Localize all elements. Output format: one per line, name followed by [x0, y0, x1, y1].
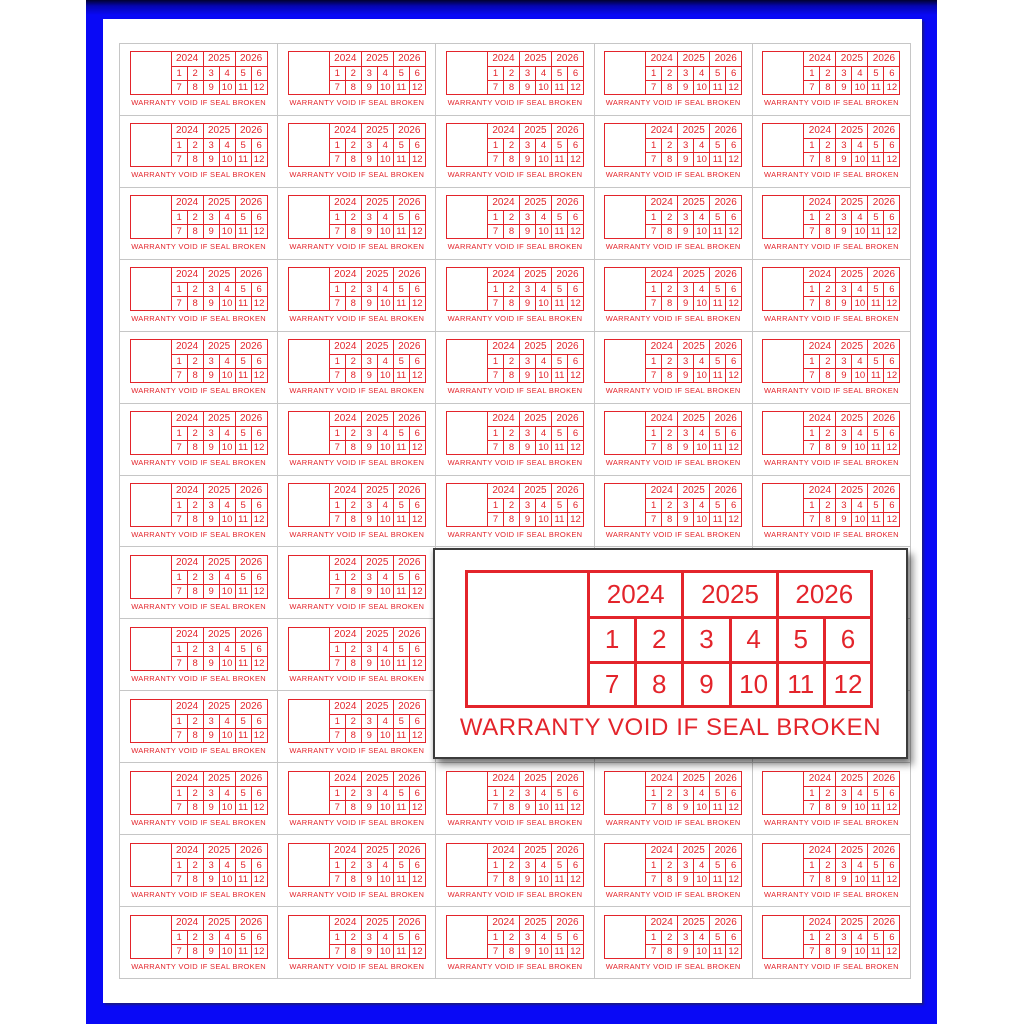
month-cell: 11 [868, 873, 884, 886]
month-cell: 6 [252, 715, 267, 728]
month-cell: 5 [868, 499, 884, 512]
month-row: 123456 [330, 211, 425, 225]
month-cell: 9 [836, 369, 852, 382]
month-cell: 4 [694, 859, 710, 872]
month-cell: 3 [836, 283, 852, 296]
month-cell: 9 [520, 369, 536, 382]
month-cell: 9 [836, 513, 852, 526]
year-row: 202420252026 [646, 484, 741, 499]
month-cell: 8 [346, 873, 362, 886]
month-cell: 3 [204, 283, 220, 296]
month-cell: 6 [884, 427, 899, 440]
year-row: 202420252026 [330, 628, 425, 643]
sheet-cell: 202420252026123456789101112WARRANTY VOID… [120, 907, 278, 979]
year-cell: 2024 [804, 484, 836, 498]
month-cell: 7 [646, 513, 662, 526]
date-table: 202420252026123456789101112 [646, 124, 741, 166]
month-cell: 7 [488, 369, 504, 382]
month-cell: 1 [488, 859, 504, 872]
month-cell: 7 [646, 441, 662, 454]
date-table: 202420252026123456789101112 [804, 196, 899, 238]
month-cell: 5 [394, 787, 410, 800]
year-cell: 2024 [804, 52, 836, 66]
month-row: 123456 [488, 211, 583, 225]
warranty-sticker: 202420252026123456789101112WARRANTY VOID… [288, 699, 426, 755]
month-cell: 3 [678, 211, 694, 224]
month-cell: 3 [678, 67, 694, 80]
month-cell: 2 [662, 211, 678, 224]
month-cell: 11 [710, 297, 726, 310]
serial-write-box [131, 484, 172, 526]
warranty-text: WARRANTY VOID IF SEAL BROKEN [448, 890, 583, 899]
month-cell: 12 [410, 657, 425, 670]
month-cell: 8 [504, 441, 520, 454]
month-cell: 7 [646, 801, 662, 814]
month-cell: 8 [188, 945, 204, 958]
month-row: 789101112 [330, 297, 425, 310]
warranty-text: WARRANTY VOID IF SEAL BROKEN [606, 170, 741, 179]
date-table: 202420252026123456789101112 [330, 916, 425, 958]
month-cell: 4 [852, 283, 868, 296]
warranty-text: WARRANTY VOID IF SEAL BROKEN [289, 890, 424, 899]
month-cell: 11 [710, 873, 726, 886]
month-cell: 4 [378, 499, 394, 512]
month-cell: 3 [520, 787, 536, 800]
sticker-frame: 202420252026123456789101112 [446, 267, 584, 311]
year-row: 202420252026 [804, 196, 899, 211]
month-cell: 4 [852, 211, 868, 224]
month-cell: 12 [410, 873, 425, 886]
month-cell: 8 [504, 81, 520, 94]
sticker-frame: 202420252026123456789101112 [604, 339, 742, 383]
sheet-cell: 202420252026123456789101112WARRANTY VOID… [120, 332, 278, 404]
year-cell: 2024 [646, 772, 678, 786]
month-cell: 11 [236, 729, 252, 742]
year-cell: 2026 [394, 52, 425, 66]
month-cell: 1 [330, 571, 346, 584]
month-row: 123456 [488, 139, 583, 153]
month-cell: 10 [378, 801, 394, 814]
month-cell: 3 [678, 787, 694, 800]
serial-write-box [605, 340, 646, 382]
warranty-text: WARRANTY VOID IF SEAL BROKEN [131, 98, 266, 107]
month-cell: 12 [826, 664, 870, 706]
month-cell: 11 [394, 585, 410, 598]
serial-write-box [131, 556, 172, 598]
year-cell: 2024 [330, 772, 362, 786]
serial-write-box [447, 772, 488, 814]
sticker-frame: 202420252026123456789101112 [762, 915, 900, 959]
year-cell: 2025 [362, 340, 394, 354]
year-row: 202420252026 [488, 844, 583, 859]
warranty-text: WARRANTY VOID IF SEAL BROKEN [131, 314, 266, 323]
year-cell: 2026 [710, 340, 741, 354]
date-table: 202420252026123456789101112 [172, 556, 267, 598]
month-cell: 8 [820, 153, 836, 166]
year-cell: 2026 [710, 844, 741, 858]
month-cell: 7 [488, 801, 504, 814]
sheet-cell: 202420252026123456789101112WARRANTY VOID… [278, 116, 436, 188]
month-cell: 6 [568, 787, 583, 800]
month-row: 123456 [172, 787, 267, 801]
year-row: 202420252026 [330, 52, 425, 67]
month-cell: 4 [220, 859, 236, 872]
sticker-frame: 202420252026123456789101112 [604, 843, 742, 887]
month-cell: 5 [394, 715, 410, 728]
serial-write-box [131, 196, 172, 238]
year-cell: 2025 [204, 340, 236, 354]
month-cell: 11 [552, 225, 568, 238]
year-cell: 2024 [804, 412, 836, 426]
month-cell: 4 [536, 67, 552, 80]
month-cell: 8 [188, 297, 204, 310]
date-table: 202420252026123456789101112 [330, 556, 425, 598]
sheet-cell: 202420252026123456789101112WARRANTY VOID… [278, 260, 436, 332]
month-cell: 7 [646, 81, 662, 94]
month-cell: 4 [220, 67, 236, 80]
year-cell: 2025 [678, 772, 710, 786]
month-row: 123456 [172, 67, 267, 81]
warranty-text: WARRANTY VOID IF SEAL BROKEN [131, 602, 266, 611]
month-cell: 7 [488, 153, 504, 166]
month-row: 789101112 [488, 225, 583, 238]
warranty-sticker: 202420252026123456789101112WARRANTY VOID… [130, 555, 268, 611]
month-row: 789101112 [330, 153, 425, 166]
year-cell: 2024 [330, 700, 362, 714]
month-cell: 10 [852, 441, 868, 454]
month-cell: 1 [646, 499, 662, 512]
month-cell: 4 [694, 787, 710, 800]
month-cell: 8 [346, 657, 362, 670]
month-cell: 5 [394, 643, 410, 656]
month-row: 789101112 [330, 945, 425, 958]
month-cell: 4 [220, 571, 236, 584]
year-cell: 2024 [172, 556, 204, 570]
month-cell: 7 [172, 297, 188, 310]
month-cell: 9 [362, 369, 378, 382]
month-cell: 3 [362, 715, 378, 728]
warranty-sticker: 202420252026123456789101112WARRANTY VOID… [130, 339, 268, 395]
month-cell: 5 [552, 859, 568, 872]
year-row: 202420252026 [172, 124, 267, 139]
month-cell: 4 [536, 931, 552, 944]
month-cell: 8 [662, 801, 678, 814]
year-row: 202420252026 [646, 196, 741, 211]
warranty-text: WARRANTY VOID IF SEAL BROKEN [289, 530, 424, 539]
month-cell: 3 [362, 931, 378, 944]
month-row: 789101112 [172, 369, 267, 382]
warranty-text: WARRANTY VOID IF SEAL BROKEN [606, 962, 741, 971]
year-cell: 2024 [172, 700, 204, 714]
month-cell: 11 [868, 225, 884, 238]
warranty-text: WARRANTY VOID IF SEAL BROKEN [606, 314, 741, 323]
month-cell: 7 [330, 369, 346, 382]
month-row: 123456 [804, 859, 899, 873]
month-cell: 11 [868, 153, 884, 166]
month-cell: 12 [726, 801, 741, 814]
date-table: 202420252026123456789101112 [330, 124, 425, 166]
month-cell: 1 [330, 139, 346, 152]
month-cell: 4 [694, 931, 710, 944]
year-cell: 2026 [710, 412, 741, 426]
warranty-sticker: 202420252026123456789101112WARRANTY VOID… [446, 339, 584, 395]
month-cell: 10 [694, 153, 710, 166]
year-cell: 2025 [204, 412, 236, 426]
month-cell: 11 [710, 801, 726, 814]
year-cell: 2026 [236, 268, 267, 282]
sticker-frame: 202420252026123456789101112 [604, 483, 742, 527]
year-cell: 2025 [362, 196, 394, 210]
sheet-cell: 202420252026123456789101112WARRANTY VOID… [120, 691, 278, 763]
month-cell: 8 [346, 369, 362, 382]
year-cell: 2024 [646, 916, 678, 930]
month-cell: 10 [536, 153, 552, 166]
month-cell: 4 [378, 139, 394, 152]
month-cell: 6 [252, 787, 267, 800]
month-cell: 9 [678, 369, 694, 382]
month-cell: 11 [779, 664, 826, 706]
serial-write-box [289, 556, 330, 598]
year-cell: 2026 [394, 484, 425, 498]
month-cell: 4 [220, 499, 236, 512]
serial-write-box [289, 268, 330, 310]
year-cell: 2024 [804, 196, 836, 210]
month-cell: 7 [330, 297, 346, 310]
month-cell: 4 [220, 931, 236, 944]
month-row: 789101112 [804, 441, 899, 454]
month-cell: 11 [710, 513, 726, 526]
month-cell: 6 [726, 283, 741, 296]
warranty-sticker: 202420252026123456789101112WARRANTY VOID… [130, 483, 268, 539]
month-row: 789101112 [804, 945, 899, 958]
month-row: 123456 [172, 931, 267, 945]
year-cell: 2025 [520, 916, 552, 930]
month-cell: 3 [362, 787, 378, 800]
month-cell: 10 [378, 729, 394, 742]
month-cell: 11 [552, 801, 568, 814]
year-cell: 2026 [552, 916, 583, 930]
month-cell: 4 [378, 643, 394, 656]
month-cell: 2 [188, 787, 204, 800]
sticker-frame: 202420252026123456789101112 [288, 555, 426, 599]
month-cell: 8 [820, 81, 836, 94]
month-cell: 4 [220, 139, 236, 152]
month-cell: 12 [410, 513, 425, 526]
month-row: 123456 [330, 283, 425, 297]
year-row: 202420252026 [330, 700, 425, 715]
month-cell: 6 [884, 139, 899, 152]
month-cell: 9 [204, 81, 220, 94]
month-cell: 12 [410, 297, 425, 310]
date-table: 202420252026123456789101112 [646, 268, 741, 310]
year-cell: 2025 [362, 124, 394, 138]
sheet-cell: 202420252026123456789101112WARRANTY VOID… [753, 332, 911, 404]
serial-write-box [289, 484, 330, 526]
year-cell: 2024 [330, 340, 362, 354]
year-cell: 2026 [236, 628, 267, 642]
year-cell: 2026 [394, 340, 425, 354]
month-cell: 5 [236, 931, 252, 944]
month-cell: 9 [678, 801, 694, 814]
month-cell: 7 [646, 153, 662, 166]
month-cell: 1 [488, 355, 504, 368]
date-table: 202420252026123456789101112 [804, 52, 899, 94]
year-cell: 2024 [172, 52, 204, 66]
month-cell: 12 [726, 945, 741, 958]
month-row: 789101112 [172, 441, 267, 454]
month-row: 789101112 [330, 657, 425, 670]
year-cell: 2024 [172, 628, 204, 642]
sheet-cell: 202420252026123456789101112WARRANTY VOID… [595, 404, 753, 476]
month-row: 123456 [172, 283, 267, 297]
month-cell: 8 [188, 657, 204, 670]
month-cell: 11 [394, 945, 410, 958]
warranty-sticker: 202420252026123456789101112WARRANTY VOID… [130, 627, 268, 683]
year-cell: 2026 [236, 124, 267, 138]
month-cell: 10 [852, 801, 868, 814]
month-cell: 6 [826, 619, 870, 661]
month-cell: 3 [362, 139, 378, 152]
month-cell: 8 [662, 225, 678, 238]
month-cell: 5 [552, 499, 568, 512]
month-cell: 8 [504, 153, 520, 166]
sticker-frame: 202420252026123456789101112 [446, 843, 584, 887]
month-row: 789101112 [330, 369, 425, 382]
month-cell: 1 [804, 499, 820, 512]
month-cell: 12 [884, 369, 899, 382]
month-cell: 11 [710, 369, 726, 382]
sticker-frame: 202420252026123456789101112 [130, 51, 268, 95]
month-row: 789101112 [646, 513, 741, 526]
month-cell: 9 [678, 873, 694, 886]
year-row: 202420252026 [646, 844, 741, 859]
date-table: 202420252026123456789101112 [172, 268, 267, 310]
month-cell: 7 [804, 441, 820, 454]
warranty-text: WARRANTY VOID IF SEAL BROKEN [131, 890, 266, 899]
warranty-sticker: 202420252026123456789101112WARRANTY VOID… [130, 267, 268, 323]
month-cell: 1 [330, 211, 346, 224]
year-row: 202420252026 [172, 628, 267, 643]
month-cell: 4 [378, 355, 394, 368]
month-cell: 12 [726, 153, 741, 166]
month-cell: 4 [852, 787, 868, 800]
year-cell: 2026 [236, 916, 267, 930]
year-cell: 2025 [520, 412, 552, 426]
month-cell: 2 [188, 211, 204, 224]
month-cell: 9 [204, 369, 220, 382]
month-cell: 1 [172, 355, 188, 368]
year-cell: 2024 [172, 844, 204, 858]
month-cell: 9 [362, 225, 378, 238]
year-cell: 2026 [710, 772, 741, 786]
month-row: 789101112 [488, 801, 583, 814]
month-cell: 9 [204, 153, 220, 166]
month-cell: 8 [346, 585, 362, 598]
year-cell: 2026 [394, 556, 425, 570]
year-cell: 2026 [868, 844, 899, 858]
month-cell: 6 [884, 283, 899, 296]
month-cell: 7 [172, 441, 188, 454]
month-cell: 3 [204, 859, 220, 872]
year-cell: 2025 [204, 268, 236, 282]
date-table: 202420252026123456789101112 [804, 124, 899, 166]
warranty-text: WARRANTY VOID IF SEAL BROKEN [606, 242, 741, 251]
warranty-text: WARRANTY VOID IF SEAL BROKEN [131, 530, 266, 539]
month-cell: 6 [568, 139, 583, 152]
month-cell: 1 [330, 355, 346, 368]
date-table: 2024 2025 2026 1 2 3 4 5 6 7 8 9 10 [590, 573, 870, 705]
month-cell: 10 [378, 297, 394, 310]
sticker-frame: 202420252026123456789101112 [130, 699, 268, 743]
date-table: 202420252026123456789101112 [330, 484, 425, 526]
month-cell: 8 [188, 873, 204, 886]
serial-write-box [447, 52, 488, 94]
month-cell: 2 [346, 859, 362, 872]
date-table: 202420252026123456789101112 [172, 628, 267, 670]
month-cell: 3 [836, 427, 852, 440]
month-cell: 11 [710, 81, 726, 94]
year-cell: 2026 [552, 844, 583, 858]
month-cell: 4 [852, 931, 868, 944]
month-cell: 6 [884, 499, 899, 512]
warranty-sticker: 202420252026123456789101112WARRANTY VOID… [604, 483, 742, 539]
month-cell: 5 [868, 931, 884, 944]
month-cell: 7 [646, 369, 662, 382]
sheet-cell: 202420252026123456789101112WARRANTY VOID… [120, 547, 278, 619]
month-row: 789101112 [488, 297, 583, 310]
warranty-sticker: 202420252026123456789101112WARRANTY VOID… [130, 771, 268, 827]
month-cell: 9 [362, 801, 378, 814]
month-cell: 9 [684, 664, 731, 706]
month-cell: 9 [678, 513, 694, 526]
date-table: 202420252026123456789101112 [172, 340, 267, 382]
month-cell: 1 [172, 787, 188, 800]
warranty-sticker: 202420252026123456789101112WARRANTY VOID… [130, 195, 268, 251]
year-cell: 2025 [836, 484, 868, 498]
year-row: 202420252026 [172, 916, 267, 931]
month-row: 123456 [330, 715, 425, 729]
month-row: 123456 [804, 427, 899, 441]
year-cell: 2026 [394, 628, 425, 642]
sticker-frame: 202420252026123456789101112 [130, 843, 268, 887]
month-row: 789101112 [646, 801, 741, 814]
month-cell: 9 [520, 441, 536, 454]
warranty-sticker: 202420252026123456789101112WARRANTY VOID… [762, 339, 900, 395]
warranty-sticker: 202420252026123456789101112WARRANTY VOID… [762, 411, 900, 467]
warranty-sticker: 202420252026123456789101112WARRANTY VOID… [762, 195, 900, 251]
year-row: 202420252026 [330, 196, 425, 211]
warranty-sticker: 202420252026123456789101112WARRANTY VOID… [130, 123, 268, 179]
sticker-frame: 202420252026123456789101112 [288, 699, 426, 743]
month-cell: 1 [330, 787, 346, 800]
month-cell: 3 [362, 643, 378, 656]
month-cell: 3 [836, 67, 852, 80]
date-table: 202420252026123456789101112 [488, 340, 583, 382]
month-cell: 6 [252, 355, 267, 368]
month-row: 789101112 [172, 945, 267, 958]
month-cell: 4 [852, 67, 868, 80]
month-cell: 9 [520, 297, 536, 310]
sheet-cell: 202420252026123456789101112WARRANTY VOID… [120, 404, 278, 476]
month-cell: 10 [852, 225, 868, 238]
date-table: 202420252026123456789101112 [330, 52, 425, 94]
year-cell: 2024 [646, 268, 678, 282]
month-cell: 2 [346, 67, 362, 80]
sticker-frame: 202420252026123456789101112 [604, 123, 742, 167]
month-cell: 5 [236, 283, 252, 296]
month-row: 789101112 [646, 297, 741, 310]
month-cell: 9 [836, 297, 852, 310]
